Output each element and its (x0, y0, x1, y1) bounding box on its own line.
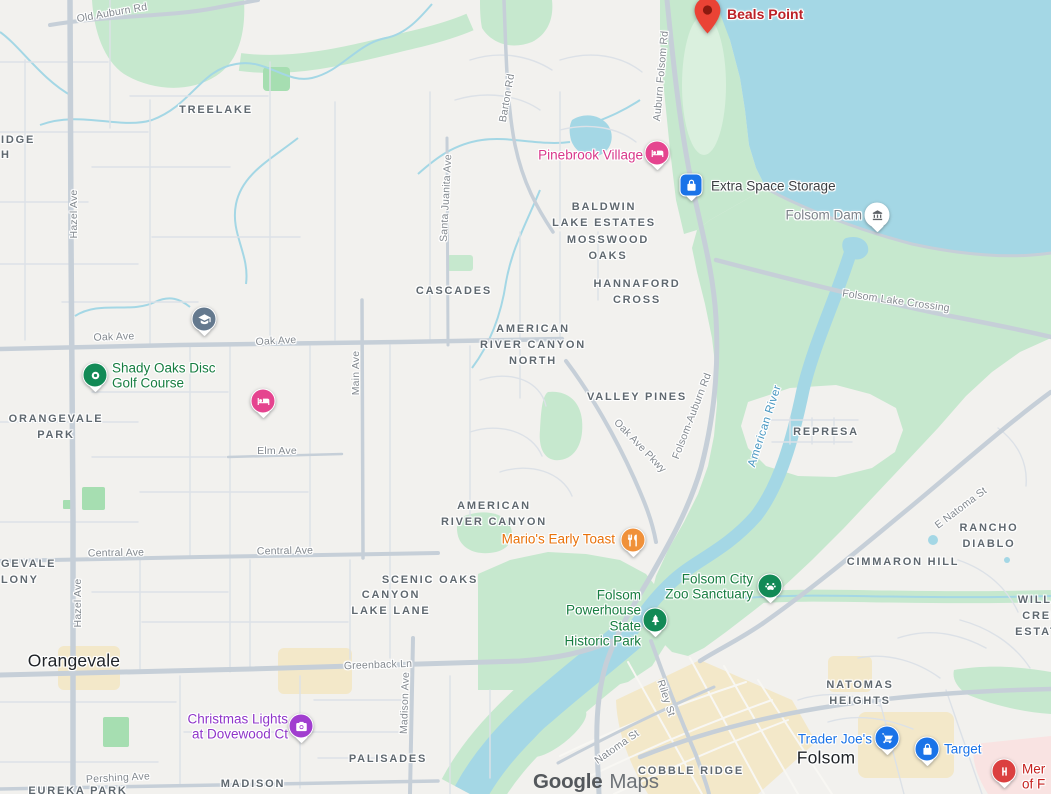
map-viewport[interactable]: OrangevaleFolsomTREELAKEBALDWIN LAKE EST… (0, 0, 1051, 794)
mercy-hospital-pin[interactable] (992, 759, 1017, 784)
target-pin[interactable] (915, 737, 940, 762)
restaurant-icon (626, 533, 640, 547)
christmas-lights-at-dovewood-ct-pin-body (289, 714, 314, 739)
folsom-city-zoo-sanctuary-label[interactable]: Folsom City Zoo Sanctuary (665, 572, 753, 603)
bed-icon (650, 146, 664, 160)
mercy-hospital-pin-body (992, 759, 1017, 784)
folsom-dam-label[interactable]: Folsom Dam (785, 207, 862, 222)
extra-space-storage-label[interactable]: Extra Space Storage (711, 178, 836, 193)
trader-joes-pin[interactable] (875, 726, 900, 751)
folsom-dam-pin-body (865, 203, 890, 228)
pinebrook-village-label[interactable]: Pinebrook Village (538, 147, 643, 162)
monument-icon (870, 208, 884, 222)
lock-icon (684, 178, 698, 192)
beals-point-pin[interactable] (694, 0, 721, 39)
beals-point-label[interactable]: Beals Point (727, 7, 803, 23)
google-maps-watermark[interactable]: GoogleMaps (533, 770, 659, 794)
christmas-lights-at-dovewood-ct-pin[interactable] (289, 714, 314, 739)
marios-early-toast-pin[interactable] (621, 528, 646, 553)
camera-icon (294, 719, 308, 733)
lodging-pin[interactable] (251, 389, 276, 414)
pinebrook-village-pin-body (645, 141, 670, 166)
marios-early-toast-pin-body (621, 528, 646, 553)
mercy-hospital-label[interactable]: Mer of F (1022, 762, 1045, 793)
school-pin[interactable] (192, 307, 217, 332)
shady-oaks-disc-golf-course-label[interactable]: Shady Oaks Disc Golf Course (112, 361, 216, 392)
target-label[interactable]: Target (944, 741, 982, 756)
target-pin-body (915, 737, 940, 762)
trader-joes-label[interactable]: Trader Joe's (798, 731, 872, 746)
school-pin-body (192, 307, 217, 332)
shady-oaks-disc-golf-course-pin[interactable] (83, 363, 108, 388)
lodging-pin-body (251, 389, 276, 414)
tree-icon (648, 613, 662, 627)
folsom-dam-pin[interactable] (865, 203, 890, 228)
folsom-powerhouse-state-historic-park-pin-body (643, 608, 668, 633)
graduation-cap-icon (197, 312, 211, 326)
marios-early-toast-label[interactable]: Mario's Early Toast (502, 531, 615, 546)
christmas-lights-at-dovewood-ct-label[interactable]: Christmas Lights at Dovewood Ct (187, 712, 288, 743)
google-logo[interactable]: Google (533, 770, 602, 793)
hospital-h-icon (997, 764, 1011, 778)
shopping-cart-icon (880, 731, 894, 745)
maps-wordmark[interactable]: Maps (609, 770, 658, 793)
map-pois: Beals PointPinebrook VillageExtra Space … (0, 0, 1051, 794)
pinebrook-village-pin[interactable] (645, 141, 670, 166)
paw-icon (763, 579, 777, 593)
shady-oaks-disc-golf-course-pin-body (83, 363, 108, 388)
extra-space-storage-pin[interactable] (680, 174, 703, 197)
folsom-city-zoo-sanctuary-pin[interactable] (758, 574, 783, 599)
folsom-city-zoo-sanctuary-pin-body (758, 574, 783, 599)
map-pin-icon (694, 0, 721, 34)
bed-icon (256, 394, 270, 408)
trader-joes-pin-body (875, 726, 900, 751)
folsom-powerhouse-state-historic-park-label[interactable]: Folsom Powerhouse State Historic Park (564, 587, 641, 649)
extra-space-storage-pin-body (680, 174, 703, 197)
lock-icon (920, 742, 934, 756)
folsom-powerhouse-state-historic-park-pin[interactable] (643, 608, 668, 633)
disc-icon (88, 368, 102, 382)
